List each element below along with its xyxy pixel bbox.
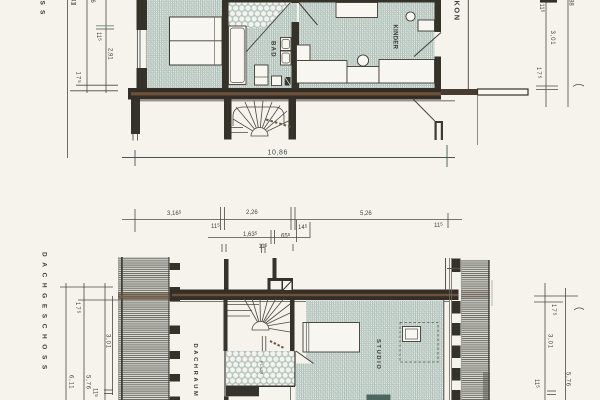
svg-text:41: 41 (70, 0, 76, 5)
svg-text:5,26: 5,26 (360, 211, 372, 217)
svg-text:3,01: 3,01 (549, 31, 555, 46)
svg-text:SS: SS (39, 1, 46, 20)
svg-text:STUDIO: STUDIO (375, 339, 381, 371)
svg-text:KINDER: KINDER (392, 25, 398, 50)
svg-text:DACHRAUM: DACHRAUM (192, 344, 198, 399)
svg-text:3,01: 3,01 (547, 334, 553, 349)
svg-text:88: 88 (568, 0, 574, 6)
svg-text:KON: KON (453, 1, 462, 22)
svg-text:5,76: 5,76 (565, 372, 571, 387)
svg-text:2,26: 2,26 (246, 210, 258, 216)
svg-text:6,11: 6,11 (68, 375, 74, 389)
svg-text:FLUR: FLUR (259, 361, 264, 375)
svg-text:BAD: BAD (270, 41, 276, 58)
svg-text:2,91: 2,91 (107, 48, 113, 60)
svg-text:5,76: 5,76 (85, 375, 91, 390)
svg-text:DACHGESCHOSS: DACHGESCHOSS (41, 252, 48, 375)
svg-text:10,86: 10,86 (268, 150, 289, 157)
svg-text:3,01: 3,01 (105, 334, 111, 349)
